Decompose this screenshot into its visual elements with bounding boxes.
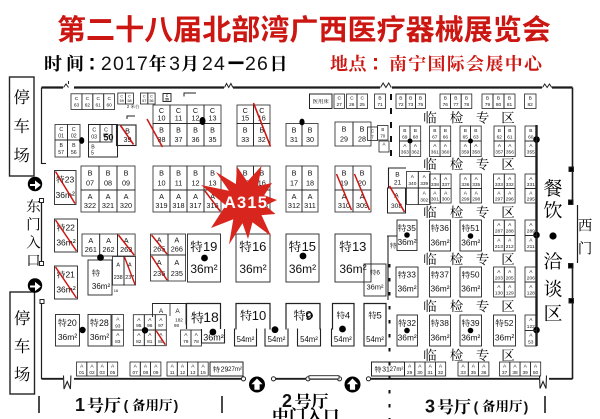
svg-text:B: B <box>59 143 63 149</box>
svg-text:20: 20 <box>67 318 77 328</box>
svg-text:): ) <box>174 397 179 413</box>
svg-text:261: 261 <box>85 245 97 254</box>
svg-text:81: 81 <box>507 102 513 108</box>
svg-text:38: 38 <box>512 370 518 376</box>
svg-text:95: 95 <box>136 323 142 329</box>
svg-text:03: 03 <box>100 370 106 376</box>
svg-text:36m²: 36m² <box>397 237 416 247</box>
svg-text:B: B <box>498 128 501 134</box>
svg-text:B: B <box>193 126 198 135</box>
svg-text:B: B <box>464 128 467 134</box>
svg-text:18: 18 <box>203 309 219 325</box>
svg-text:C: C <box>107 96 111 102</box>
svg-text:36m²: 36m² <box>430 237 449 247</box>
svg-text:29: 29 <box>407 370 413 376</box>
svg-text:22: 22 <box>65 223 75 233</box>
svg-text:32: 32 <box>407 318 417 328</box>
svg-text:B: B <box>159 169 164 178</box>
svg-text:A: A <box>174 258 179 267</box>
svg-text:321: 321 <box>102 201 114 210</box>
svg-text:54: 54 <box>165 97 169 101</box>
svg-text:15: 15 <box>302 239 316 254</box>
svg-text:B: B <box>433 128 436 134</box>
svg-text:10: 10 <box>158 114 166 123</box>
svg-text:36m²: 36m² <box>461 284 480 294</box>
svg-text:37: 37 <box>502 370 508 376</box>
svg-text:312: 312 <box>288 201 300 210</box>
svg-text:69: 69 <box>402 134 408 140</box>
svg-text:B: B <box>454 96 457 102</box>
svg-text:78: 78 <box>194 339 200 345</box>
svg-text:96: 96 <box>147 323 153 329</box>
svg-text:11: 11 <box>175 179 183 188</box>
svg-text:A: A <box>176 192 181 201</box>
svg-text:358: 358 <box>472 150 480 156</box>
svg-text:66: 66 <box>443 134 449 140</box>
svg-text:10: 10 <box>252 308 266 323</box>
svg-text:36m²: 36m² <box>190 262 217 276</box>
svg-text:15: 15 <box>200 370 206 376</box>
svg-text:337: 337 <box>442 182 450 188</box>
svg-text:13: 13 <box>190 370 196 376</box>
svg-text:68: 68 <box>413 134 419 140</box>
svg-text:12: 12 <box>180 370 186 376</box>
svg-text:12: 12 <box>191 179 199 188</box>
svg-text:C: C <box>75 96 79 102</box>
svg-text:36m²: 36m² <box>461 237 480 247</box>
svg-text:56: 56 <box>71 150 77 156</box>
svg-text:36: 36 <box>481 370 487 376</box>
svg-text:C: C <box>337 96 341 102</box>
svg-text:A315: A315 <box>224 194 268 212</box>
svg-text:355: 355 <box>527 150 535 156</box>
svg-text:27: 27 <box>337 102 343 108</box>
svg-text:A: A <box>124 192 129 201</box>
svg-text:357: 357 <box>495 150 503 156</box>
svg-text:262: 262 <box>102 245 114 254</box>
svg-text:3: 3 <box>169 53 180 75</box>
svg-text:50: 50 <box>470 270 480 280</box>
svg-text:B: B <box>360 125 365 134</box>
svg-text:356: 356 <box>506 150 514 156</box>
svg-text:28: 28 <box>99 318 109 328</box>
svg-text:36m²: 36m² <box>289 262 316 276</box>
svg-text:83: 83 <box>115 339 121 345</box>
svg-text:B: B <box>486 96 489 102</box>
svg-text:81: 81 <box>147 339 153 345</box>
svg-text:238: 238 <box>114 275 123 281</box>
svg-text:B: B <box>474 128 477 134</box>
svg-text:B: B <box>308 169 313 178</box>
svg-text:320: 320 <box>120 201 132 210</box>
svg-text:13: 13 <box>208 179 216 188</box>
svg-text:27m²: 27m² <box>390 367 404 373</box>
svg-text:07: 07 <box>86 179 94 188</box>
svg-text:340: 340 <box>408 181 416 187</box>
svg-text:128: 128 <box>527 290 535 296</box>
svg-text:51: 51 <box>470 223 480 233</box>
svg-text:16: 16 <box>114 288 119 293</box>
svg-text:C: C <box>150 94 153 98</box>
svg-text:B: B <box>381 127 384 132</box>
svg-text:B: B <box>292 169 297 178</box>
svg-text:33: 33 <box>460 370 466 376</box>
svg-text:17: 17 <box>290 179 298 188</box>
svg-text:13: 13 <box>352 239 366 254</box>
svg-text:A: A <box>159 192 164 201</box>
svg-text:71: 71 <box>377 102 383 108</box>
svg-text:58: 58 <box>127 99 131 103</box>
svg-text:360: 360 <box>441 150 449 156</box>
svg-text:54m²: 54m² <box>237 335 255 344</box>
svg-text:82: 82 <box>136 339 142 345</box>
svg-text:B: B <box>497 96 500 102</box>
svg-text:61: 61 <box>507 134 513 140</box>
svg-text:A: A <box>193 192 198 201</box>
svg-text:36m²: 36m² <box>430 284 449 294</box>
svg-text:296: 296 <box>506 197 514 203</box>
svg-text:213: 213 <box>495 244 503 250</box>
svg-text:333: 333 <box>495 182 503 188</box>
svg-text:300: 300 <box>442 197 450 203</box>
svg-text:B: B <box>378 96 381 102</box>
svg-text:C: C <box>128 94 131 98</box>
svg-text:130: 130 <box>495 290 503 296</box>
svg-text:54m²: 54m² <box>268 335 286 344</box>
svg-text:B: B <box>508 96 511 102</box>
svg-text:70: 70 <box>380 134 385 139</box>
svg-text:A: A <box>308 192 313 201</box>
svg-text:29: 29 <box>340 135 348 144</box>
svg-text:02: 02 <box>89 370 95 376</box>
svg-text:02: 02 <box>71 133 77 139</box>
svg-text:5: 5 <box>91 150 94 156</box>
svg-text:67: 67 <box>432 134 438 140</box>
svg-text:C: C <box>360 96 364 102</box>
svg-text:B: B <box>193 169 198 178</box>
svg-text:05: 05 <box>110 370 116 376</box>
svg-text:B: B <box>465 96 468 102</box>
svg-text:A: A <box>88 236 93 245</box>
svg-text:B: B <box>106 169 111 178</box>
svg-text:B: B <box>529 128 532 134</box>
svg-text:03: 03 <box>91 134 97 140</box>
svg-text:19: 19 <box>203 239 217 254</box>
svg-text:2017: 2017 <box>101 53 149 75</box>
svg-text:63: 63 <box>473 134 479 140</box>
svg-text:A: A <box>175 308 180 315</box>
svg-text:18: 18 <box>306 179 314 188</box>
svg-text:30: 30 <box>417 370 423 376</box>
svg-text:B: B <box>444 96 447 102</box>
svg-text:08: 08 <box>104 179 112 188</box>
svg-text:A: A <box>106 192 111 201</box>
svg-text:36m²: 36m² <box>366 283 384 292</box>
svg-text:75: 75 <box>418 102 424 108</box>
svg-text:C: C <box>371 128 374 133</box>
svg-text:3: 3 <box>425 396 435 416</box>
svg-text:60: 60 <box>528 134 534 140</box>
svg-text:76: 76 <box>443 102 449 108</box>
svg-text:16: 16 <box>252 239 266 254</box>
svg-text:1: 1 <box>75 395 85 415</box>
svg-text:07: 07 <box>133 370 139 376</box>
svg-text:50: 50 <box>533 370 539 376</box>
svg-text:38: 38 <box>440 318 450 328</box>
svg-text:39: 39 <box>470 318 480 328</box>
svg-text:36: 36 <box>440 223 450 233</box>
svg-text:B: B <box>395 171 400 178</box>
svg-text:36m²: 36m² <box>495 332 515 342</box>
svg-text:301: 301 <box>431 197 439 203</box>
svg-text:37: 37 <box>440 270 450 280</box>
svg-text:288: 288 <box>506 229 514 235</box>
svg-text:28: 28 <box>358 135 366 144</box>
svg-text:B: B <box>360 169 365 178</box>
svg-text:35: 35 <box>209 135 217 144</box>
svg-text:09: 09 <box>122 179 130 188</box>
svg-text:): ) <box>524 398 529 414</box>
svg-text:77: 77 <box>453 102 459 108</box>
svg-text:09: 09 <box>153 370 159 376</box>
svg-text:B: B <box>419 96 422 102</box>
svg-text:54m²: 54m² <box>300 335 318 344</box>
svg-text:302: 302 <box>420 197 428 203</box>
svg-text:35: 35 <box>407 223 417 233</box>
svg-text:287: 287 <box>495 229 503 235</box>
svg-text:B: B <box>292 126 297 135</box>
svg-text:335: 335 <box>472 182 480 188</box>
svg-text:21: 21 <box>65 270 75 280</box>
svg-text:36m²: 36m² <box>398 332 417 342</box>
svg-text:32: 32 <box>258 135 266 144</box>
svg-text:73: 73 <box>408 102 414 108</box>
svg-text:B: B <box>444 128 447 134</box>
svg-text:50: 50 <box>103 133 113 143</box>
svg-text:361: 361 <box>431 150 439 156</box>
svg-text:56: 56 <box>149 99 153 103</box>
svg-text:59: 59 <box>120 99 124 103</box>
svg-text:211: 211 <box>527 244 535 250</box>
svg-text:362: 362 <box>411 150 419 156</box>
svg-text:61: 61 <box>96 103 102 109</box>
svg-text:297: 297 <box>495 197 503 203</box>
svg-text:B: B <box>342 125 347 134</box>
svg-text:01: 01 <box>79 370 85 376</box>
svg-text:36m²: 36m² <box>397 284 416 294</box>
svg-text:B: B <box>176 169 181 178</box>
svg-text:01: 01 <box>58 133 64 139</box>
svg-text:319: 319 <box>155 201 167 210</box>
svg-text:B: B <box>399 96 402 102</box>
svg-text:336: 336 <box>461 182 469 188</box>
svg-text:32: 32 <box>438 370 444 376</box>
svg-text:205: 205 <box>506 275 514 281</box>
svg-text:203: 203 <box>495 275 503 281</box>
svg-text:31: 31 <box>428 370 434 376</box>
svg-text:72: 72 <box>398 102 404 108</box>
svg-text:12: 12 <box>192 114 200 123</box>
svg-text:97: 97 <box>158 323 164 329</box>
svg-text:62: 62 <box>85 103 91 109</box>
svg-text:24: 24 <box>202 53 226 75</box>
svg-text:318: 318 <box>172 201 184 210</box>
svg-text:54m²: 54m² <box>334 335 352 344</box>
svg-text:(: ( <box>474 398 479 414</box>
svg-text:317: 317 <box>189 201 201 210</box>
svg-text:B: B <box>403 128 406 134</box>
svg-text:B: B <box>88 169 93 178</box>
svg-text:C: C <box>92 127 96 133</box>
svg-text:C: C <box>96 96 100 102</box>
svg-text:A: A <box>292 192 297 201</box>
svg-text:98: 98 <box>174 323 179 328</box>
svg-text:79: 79 <box>485 102 491 108</box>
svg-text:B: B <box>159 126 164 135</box>
svg-text:93: 93 <box>115 323 121 329</box>
svg-text:B: B <box>342 169 347 178</box>
svg-text:C: C <box>86 96 90 102</box>
svg-text:60: 60 <box>107 103 113 109</box>
svg-text:35: 35 <box>471 370 477 376</box>
svg-text:122: 122 <box>527 324 535 330</box>
svg-text:6: 6 <box>376 270 380 277</box>
svg-text:A: A <box>116 262 120 268</box>
svg-text:B: B <box>210 169 215 178</box>
svg-text:37: 37 <box>175 135 183 144</box>
svg-text:C: C <box>120 94 123 98</box>
svg-text:A: A <box>106 236 111 245</box>
svg-text:11: 11 <box>175 114 182 123</box>
svg-text:10: 10 <box>157 179 165 188</box>
svg-text:82: 82 <box>528 102 534 108</box>
svg-text:39: 39 <box>523 370 529 376</box>
svg-text:212: 212 <box>506 244 514 250</box>
svg-text:206: 206 <box>527 275 535 281</box>
svg-text:A: A <box>159 308 164 315</box>
svg-text:78: 78 <box>464 102 470 108</box>
svg-text:31: 31 <box>290 135 298 144</box>
svg-text:5: 5 <box>377 311 382 322</box>
svg-text:266: 266 <box>171 245 183 254</box>
svg-text:235: 235 <box>171 269 183 278</box>
svg-text:359: 359 <box>461 150 469 156</box>
svg-text:B: B <box>124 169 129 178</box>
svg-text:36m²: 36m² <box>461 332 480 342</box>
svg-text:53: 53 <box>528 339 534 345</box>
svg-text:33: 33 <box>407 270 417 280</box>
svg-text:A: A <box>383 142 386 147</box>
svg-text:A: A <box>88 192 93 201</box>
svg-text:57: 57 <box>142 99 146 103</box>
svg-text:B: B <box>508 128 511 134</box>
svg-text:2: 2 <box>282 391 292 411</box>
svg-text:27m²: 27m² <box>228 367 242 373</box>
svg-text:B: B <box>409 96 412 102</box>
svg-text:A: A <box>174 236 179 245</box>
svg-text:(: ( <box>124 397 129 413</box>
svg-text:80: 80 <box>496 102 502 108</box>
svg-text:B: B <box>210 126 215 135</box>
svg-text:36m²: 36m² <box>239 262 266 276</box>
svg-text:21: 21 <box>394 179 402 186</box>
svg-text:54m²: 54m² <box>366 335 384 344</box>
svg-text:57: 57 <box>58 150 64 156</box>
svg-text:289: 289 <box>527 229 535 235</box>
svg-text:26: 26 <box>349 102 355 108</box>
svg-text:13: 13 <box>209 114 217 123</box>
svg-text:339: 339 <box>420 181 428 187</box>
svg-text:B: B <box>529 96 532 102</box>
svg-text:C: C <box>350 96 354 102</box>
svg-text:332: 332 <box>506 182 514 188</box>
svg-text:30: 30 <box>306 135 314 144</box>
svg-text:36: 36 <box>192 135 200 144</box>
svg-text:36m²: 36m² <box>58 332 78 342</box>
svg-text:C: C <box>59 127 63 133</box>
svg-text:311: 311 <box>304 201 316 210</box>
svg-text:08: 08 <box>143 370 149 376</box>
svg-text:36m²: 36m² <box>339 262 366 276</box>
svg-text:33: 33 <box>241 135 249 144</box>
svg-text:36m²: 36m² <box>430 332 449 342</box>
svg-text:B: B <box>243 126 248 135</box>
svg-text:298: 298 <box>472 197 480 203</box>
svg-text:52: 52 <box>504 318 514 328</box>
svg-text:11: 11 <box>170 370 175 376</box>
svg-text:15: 15 <box>241 114 249 123</box>
svg-text:B: B <box>72 143 76 149</box>
svg-text:363: 363 <box>401 150 409 156</box>
svg-text:322: 322 <box>84 201 96 210</box>
svg-text:62: 62 <box>497 134 503 140</box>
svg-text:129: 129 <box>506 290 514 296</box>
svg-text:C: C <box>143 94 146 98</box>
svg-text:23: 23 <box>65 174 75 184</box>
svg-text:331: 331 <box>527 182 535 188</box>
svg-text:36m²: 36m² <box>92 282 111 291</box>
svg-text:26: 26 <box>245 53 269 75</box>
svg-text:B: B <box>308 126 313 135</box>
svg-text:B: B <box>414 128 417 134</box>
svg-text:182: 182 <box>175 318 183 323</box>
svg-text:295: 295 <box>527 197 535 203</box>
svg-text:79: 79 <box>183 339 189 345</box>
svg-text:25: 25 <box>360 102 366 108</box>
svg-text:36m²: 36m² <box>90 332 110 342</box>
svg-text:299: 299 <box>461 197 469 203</box>
svg-text:338: 338 <box>431 182 439 188</box>
svg-text:63: 63 <box>74 103 80 109</box>
svg-text:B: B <box>176 126 181 135</box>
svg-text:C: C <box>72 127 76 133</box>
svg-text:4: 4 <box>345 311 350 322</box>
svg-text:65: 65 <box>463 134 469 140</box>
